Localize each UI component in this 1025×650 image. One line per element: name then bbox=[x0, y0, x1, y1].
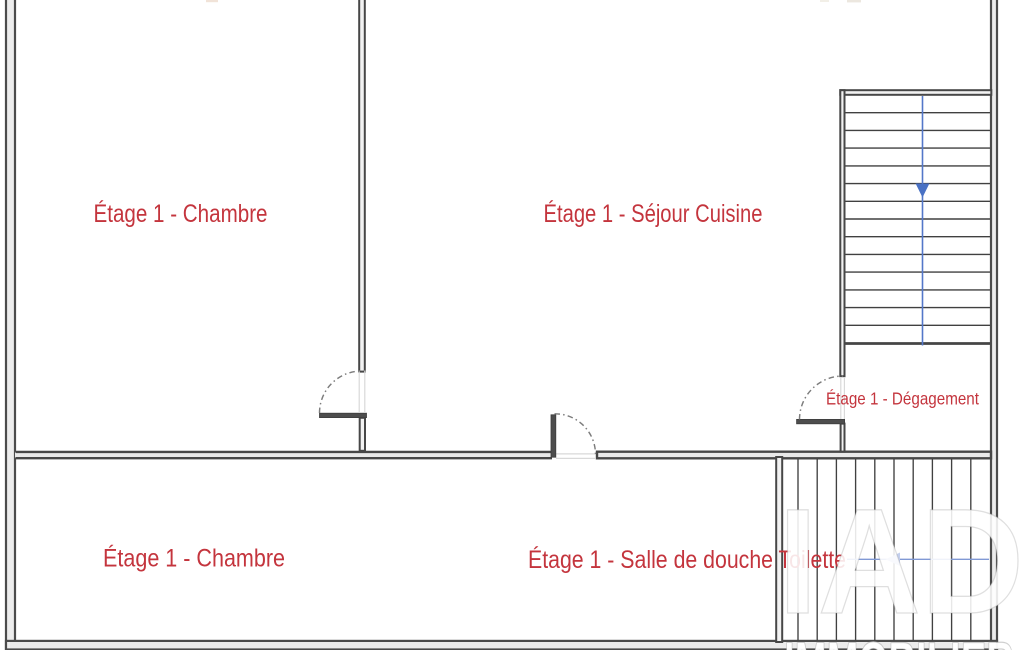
svg-text:IMMOBILIER: IMMOBILIER bbox=[784, 630, 1014, 650]
svg-text:Étage 1 - Dégagement: Étage 1 - Dégagement bbox=[826, 389, 979, 409]
svg-text:Étage 1 - Séjour Cuisine: Étage 1 - Séjour Cuisine bbox=[544, 199, 763, 228]
svg-text:Étage 1 - Chambre: Étage 1 - Chambre bbox=[94, 199, 268, 228]
svg-text:IAD: IAD bbox=[778, 477, 1024, 645]
svg-text:Étage 1 - Chambre: Étage 1 - Chambre bbox=[103, 544, 285, 573]
